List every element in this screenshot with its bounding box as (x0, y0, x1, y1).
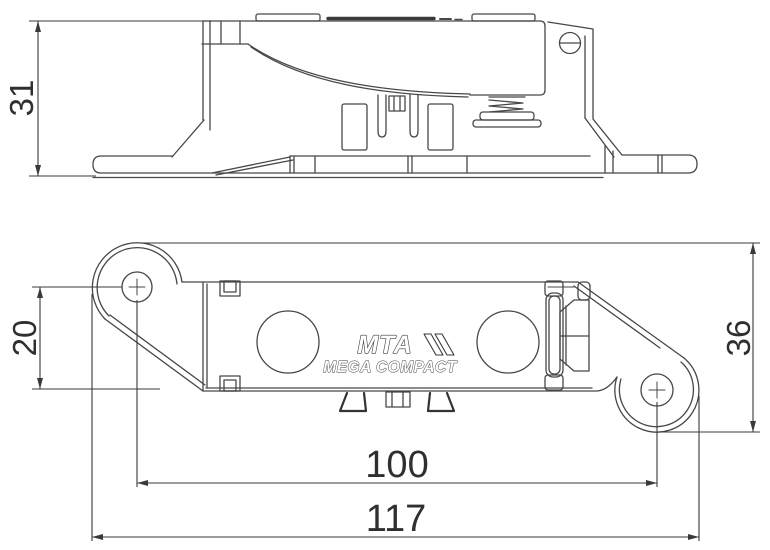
fuse-opening-right (477, 311, 539, 373)
dimension-100: 100 (137, 300, 657, 487)
dim-100-label: 100 (365, 444, 428, 486)
latch-detail (546, 282, 590, 377)
dim-117-label: 117 (366, 498, 427, 540)
dim-20-label: 20 (6, 320, 43, 357)
lid-tab-right (472, 14, 535, 21)
side-terminals (342, 95, 541, 150)
technical-drawing-page: 31 (0, 0, 770, 550)
lid-tab-left (256, 14, 320, 21)
logo-brand: MTA (357, 331, 412, 359)
plan-feet (340, 392, 454, 411)
side-right-bracket (548, 22, 622, 157)
drawing-svg: 31 (0, 0, 770, 550)
brand-logo: MTA MEGA COMPACT (323, 331, 457, 376)
right-mounting-ear (574, 282, 699, 432)
left-mounting-ear (92, 243, 205, 391)
logo-product: MEGA COMPACT (323, 359, 457, 376)
top-view: MTA MEGA COMPACT (92, 243, 699, 432)
dimension-31: 31 (3, 21, 211, 176)
dim-31-label: 31 (3, 80, 40, 117)
side-curved-face (172, 44, 470, 157)
spring-terminal (473, 97, 541, 127)
fuse-opening-left (257, 311, 319, 373)
logo-slashes-icon (424, 334, 454, 355)
side-view (93, 14, 697, 178)
hole-right-center-mark (649, 382, 665, 398)
hole-left-center-mark (129, 279, 145, 295)
side-base-flanges (93, 146, 697, 178)
dim-36-label: 36 (720, 320, 757, 357)
